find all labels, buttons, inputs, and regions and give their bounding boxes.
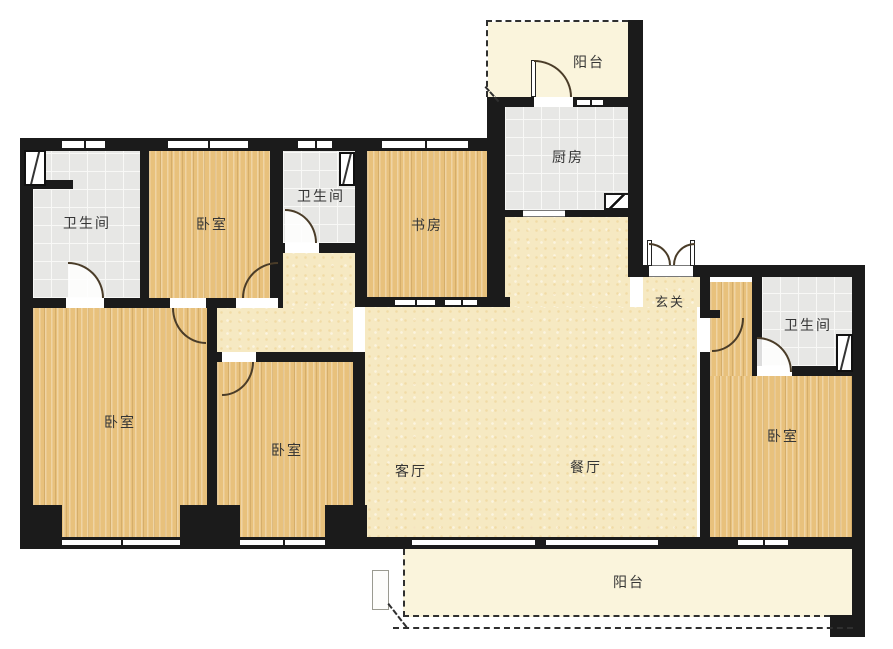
wall-bed4-door-nib bbox=[700, 310, 720, 318]
window-study-bottom-2 bbox=[445, 298, 477, 307]
balcony-top-label: 阳台 bbox=[573, 52, 605, 72]
wall-bed4-left-lower bbox=[700, 352, 710, 537]
kitchen-label: 厨房 bbox=[552, 147, 584, 167]
pier-2 bbox=[180, 505, 240, 549]
entry-label: 玄关 bbox=[655, 292, 685, 311]
opening-bath2 bbox=[285, 243, 319, 253]
opening-entry bbox=[649, 265, 693, 277]
opening-balcony-door bbox=[534, 97, 573, 107]
balcony-bottom-dash-1 bbox=[403, 615, 830, 617]
balcony-top-dashed-outline bbox=[486, 20, 628, 97]
living-label: 客厅 bbox=[395, 461, 427, 481]
wall-study-kitchen bbox=[487, 97, 505, 307]
wall-bath1-bed1 bbox=[140, 151, 149, 298]
bedroom-left-label: 卧室 bbox=[104, 412, 136, 432]
floor-plan: 卫生间 卧室 卫生间 书房 阳台 厨房 玄关 卫生间 卧室 卧室 卧室 客厅 餐… bbox=[0, 0, 893, 649]
bedroom-right-floor bbox=[708, 376, 852, 537]
window-study-bottom-1 bbox=[395, 298, 435, 307]
door-entry-right bbox=[673, 243, 695, 265]
dining-label: 餐厅 bbox=[570, 457, 602, 477]
vestibule-floor bbox=[283, 253, 355, 308]
opening-bed3 bbox=[222, 352, 256, 362]
opening-bed2 bbox=[170, 298, 206, 308]
window-top-3 bbox=[298, 139, 332, 150]
balcony-corner-block bbox=[830, 615, 865, 637]
bathroom-top-left-label: 卫生间 bbox=[63, 213, 111, 233]
wall-right-outer bbox=[852, 265, 865, 637]
window-living-slider bbox=[412, 538, 658, 547]
opening-bed1 bbox=[236, 298, 278, 308]
bedroom-right-label: 卧室 bbox=[767, 426, 799, 446]
kitchen-sink-icon bbox=[604, 193, 630, 210]
window-kitchen-top bbox=[577, 98, 603, 107]
window-top-1 bbox=[62, 139, 105, 150]
wall-left-outer bbox=[20, 138, 33, 549]
slider-tick bbox=[536, 537, 546, 549]
opening-kitchen-bottom bbox=[523, 210, 565, 217]
pier-3 bbox=[325, 505, 367, 549]
balcony-bottom-left-dash bbox=[403, 549, 405, 617]
hallway-floor bbox=[217, 308, 353, 352]
casement-window-bath1 bbox=[24, 150, 46, 186]
living-dining-floor bbox=[365, 307, 697, 537]
window-bed2-bottom bbox=[62, 538, 180, 547]
window-bed3-bottom bbox=[240, 538, 325, 547]
casement-window-bath2 bbox=[339, 152, 355, 186]
study-label: 书房 bbox=[411, 215, 443, 235]
window-top-4 bbox=[382, 139, 468, 150]
wall-bed2-bed3 bbox=[207, 308, 217, 537]
balcony-bottom-dash-2 bbox=[393, 627, 853, 629]
bedroom-mid-label: 卧室 bbox=[271, 440, 303, 460]
door-entry-left bbox=[649, 243, 671, 265]
wall-right-upper bbox=[628, 20, 643, 277]
window-bed4-bottom bbox=[738, 538, 788, 547]
dining-upper-floor bbox=[505, 217, 630, 307]
pier-1 bbox=[20, 505, 62, 549]
bathroom-right-label: 卫生间 bbox=[784, 315, 832, 335]
bathroom-top-mid-label: 卫生间 bbox=[297, 186, 345, 206]
balcony-bottom-label: 阳台 bbox=[613, 572, 645, 592]
wall-study-left bbox=[355, 138, 367, 307]
casement-window-bath3 bbox=[836, 334, 853, 372]
window-top-2 bbox=[168, 139, 248, 150]
wall-bed4-left-upper bbox=[700, 277, 710, 313]
bedroom-top-left-label: 卧室 bbox=[196, 214, 228, 234]
opening-bath1 bbox=[66, 298, 104, 308]
